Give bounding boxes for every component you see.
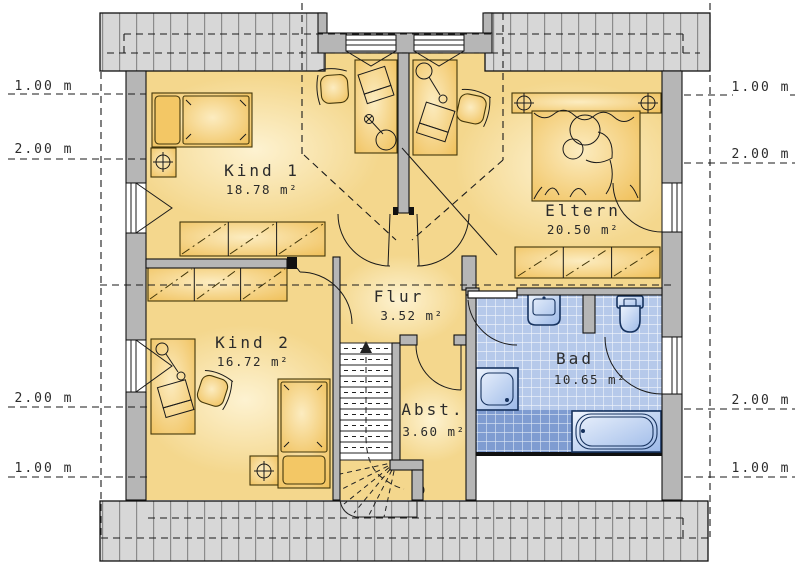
stairwell-right-wall — [392, 343, 400, 462]
door-post — [393, 207, 398, 215]
floor-plan: Kind 1 18.78 m² Eltern 20.50 m² Kind 2 1… — [0, 0, 800, 567]
nightstand-icon — [250, 456, 278, 485]
roof-band-top-left — [100, 13, 325, 71]
desk-icon — [355, 60, 397, 153]
wall-kind1-kind2 — [146, 259, 287, 268]
room-area-kind1: 18.78 m² — [226, 182, 298, 197]
desk-icon — [151, 339, 195, 434]
partition-kind1-eltern — [398, 53, 409, 213]
dim-label-right-1m-top: 1.00 m — [732, 80, 791, 95]
single-bed-icon — [152, 93, 252, 147]
dim-label-left-2m-bottom: 2.00 m — [15, 391, 74, 406]
dim-label-left-1m-bottom: 1.00 m — [15, 461, 74, 476]
toilet-icon — [617, 296, 643, 332]
room-area-abst: 3.60 m² — [402, 424, 465, 439]
roof-band-bottom — [100, 501, 708, 561]
room-area-flur: 3.52 m² — [380, 308, 443, 323]
room-area-kind2: 16.72 m² — [217, 354, 289, 369]
dim-label-left-1m-top: 1.00 m — [15, 79, 74, 94]
wardrobe-icon — [180, 222, 325, 256]
bad-left-wall — [466, 288, 476, 500]
dim-label-right-1m-bottom: 1.00 m — [732, 461, 791, 476]
wardrobe-icon — [515, 247, 660, 278]
room-area-bad: 10.65 m² — [554, 372, 626, 387]
room-label-kind2: Kind 2 — [215, 333, 291, 352]
nightstand-icon — [151, 148, 176, 177]
dormer-front-wall — [318, 33, 492, 53]
room-label-bad: Bad — [556, 349, 594, 368]
dormer-wall-left — [318, 13, 327, 35]
door-post — [409, 207, 414, 215]
dim-label-right-2m-top: 2.00 m — [732, 147, 791, 162]
room-area-eltern: 20.50 m² — [547, 222, 619, 237]
door-post — [287, 257, 297, 269]
sink-icon — [528, 294, 560, 325]
roof-band-top-right — [485, 13, 710, 71]
shower-icon — [476, 368, 518, 410]
stairwell-left-wall — [333, 257, 340, 500]
double-bed-icon — [512, 93, 661, 201]
room-label-kind1: Kind 1 — [224, 161, 300, 180]
bad-stub-wall — [583, 295, 595, 333]
desk-icon — [413, 60, 457, 155]
dim-label-right-2m-bottom: 2.00 m — [732, 393, 791, 408]
single-bed-icon — [278, 379, 330, 488]
knee-wall-strip — [476, 456, 662, 501]
wall-eltern-bad — [517, 288, 662, 295]
wardrobe-icon — [148, 267, 287, 301]
room-label-flur: Flur — [374, 287, 425, 306]
bathtub-icon — [572, 411, 661, 452]
floor-plan-drawing: Kind 1 18.78 m² Eltern 20.50 m² Kind 2 1… — [0, 0, 800, 567]
room-label-abst: Abst. — [401, 400, 464, 419]
dim-label-left-2m-top: 2.00 m — [15, 142, 74, 157]
dormer-wall-right — [483, 13, 492, 35]
room-label-eltern: Eltern — [545, 201, 621, 220]
